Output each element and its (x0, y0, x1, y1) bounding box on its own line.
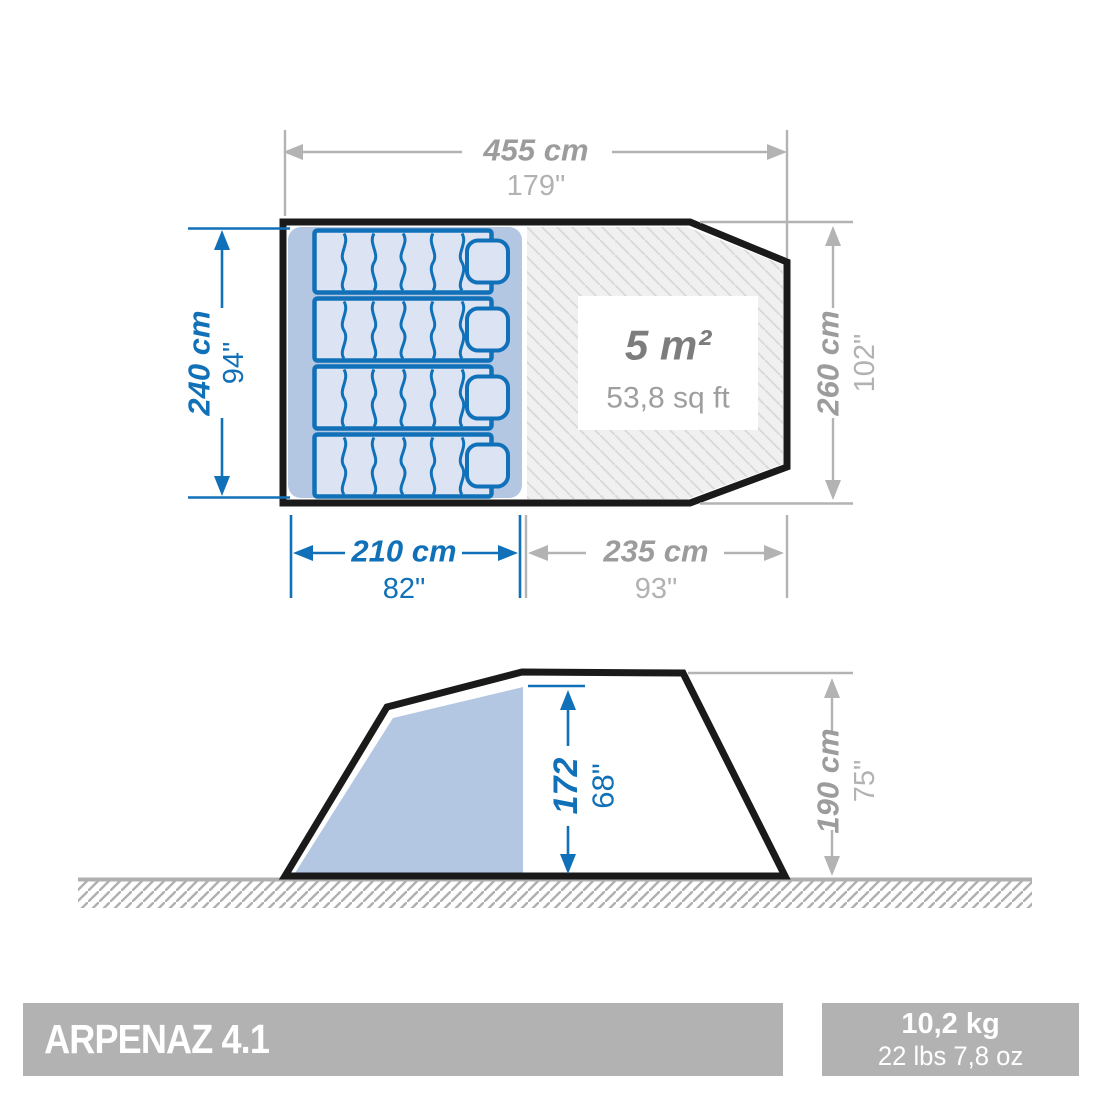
diagram-canvas: 5 m² 53,8 sq ft 455 cm 179" 240 cm 94" 2… (0, 0, 1100, 1100)
floor-plan: 5 m² 53,8 sq ft (283, 222, 787, 503)
arrow-right-icon (498, 545, 518, 561)
dim-depth-in: 94" (218, 342, 250, 385)
product-name: ARPENAZ 4.1 (23, 1016, 269, 1063)
mattress-icon (315, 367, 509, 429)
product-name-bar: ARPENAZ 4.1 (23, 1003, 783, 1076)
dim-bedroom-width-in: 82" (383, 573, 426, 605)
area-sqft-label: 53,8 sq ft (606, 382, 730, 415)
dim-right-depth-cm: 260 cm (811, 310, 846, 416)
mattress-icon (315, 231, 509, 293)
arrow-right-icon (764, 545, 784, 561)
dim-total-height-in: 75" (849, 760, 881, 803)
weight-badge: 10,2 kg 22 lbs 7,8 oz (822, 1003, 1079, 1076)
area-m2-label: 5 m² (625, 322, 712, 369)
arrow-left-icon (293, 545, 313, 561)
arrow-up-icon (824, 678, 840, 698)
arrow-down-icon (824, 856, 840, 876)
mattress-icon (315, 435, 509, 497)
dim-living-width-in: 93" (635, 573, 678, 605)
dim-inner-height-in: 68" (586, 763, 621, 809)
arrow-up-icon (214, 230, 230, 250)
dim-inner-height-cm: 172 (547, 758, 585, 815)
ground-hatch (78, 881, 1032, 908)
arrow-down-icon (825, 480, 841, 500)
dim-right-depth-in: 102" (849, 334, 881, 393)
arrow-left-icon (528, 545, 548, 561)
weight-imperial: 22 lbs 7,8 oz (878, 1041, 1023, 1072)
tent-dimensions-diagram: 5 m² 53,8 sq ft 455 cm 179" 240 cm 94" 2… (0, 0, 1100, 1100)
arrow-down-icon (214, 476, 230, 496)
dim-bedroom-width-cm: 210 cm (350, 534, 456, 569)
dim-total-width-in: 179" (507, 170, 566, 202)
dim-total-width-cm: 455 cm (482, 133, 588, 168)
dim-living-width-cm: 235 cm (602, 534, 708, 569)
dim-depth-cm: 240 cm (182, 310, 217, 416)
mattress-icon (315, 299, 509, 361)
arrow-up-icon (825, 226, 841, 246)
weight-kg: 10,2 kg (901, 1008, 999, 1041)
arrow-right-icon (767, 144, 787, 160)
bedroom-silhouette (295, 687, 523, 873)
side-view: 172 68" 190 cm 75" (78, 672, 1032, 908)
dim-total-height-cm: 190 cm (811, 728, 846, 833)
